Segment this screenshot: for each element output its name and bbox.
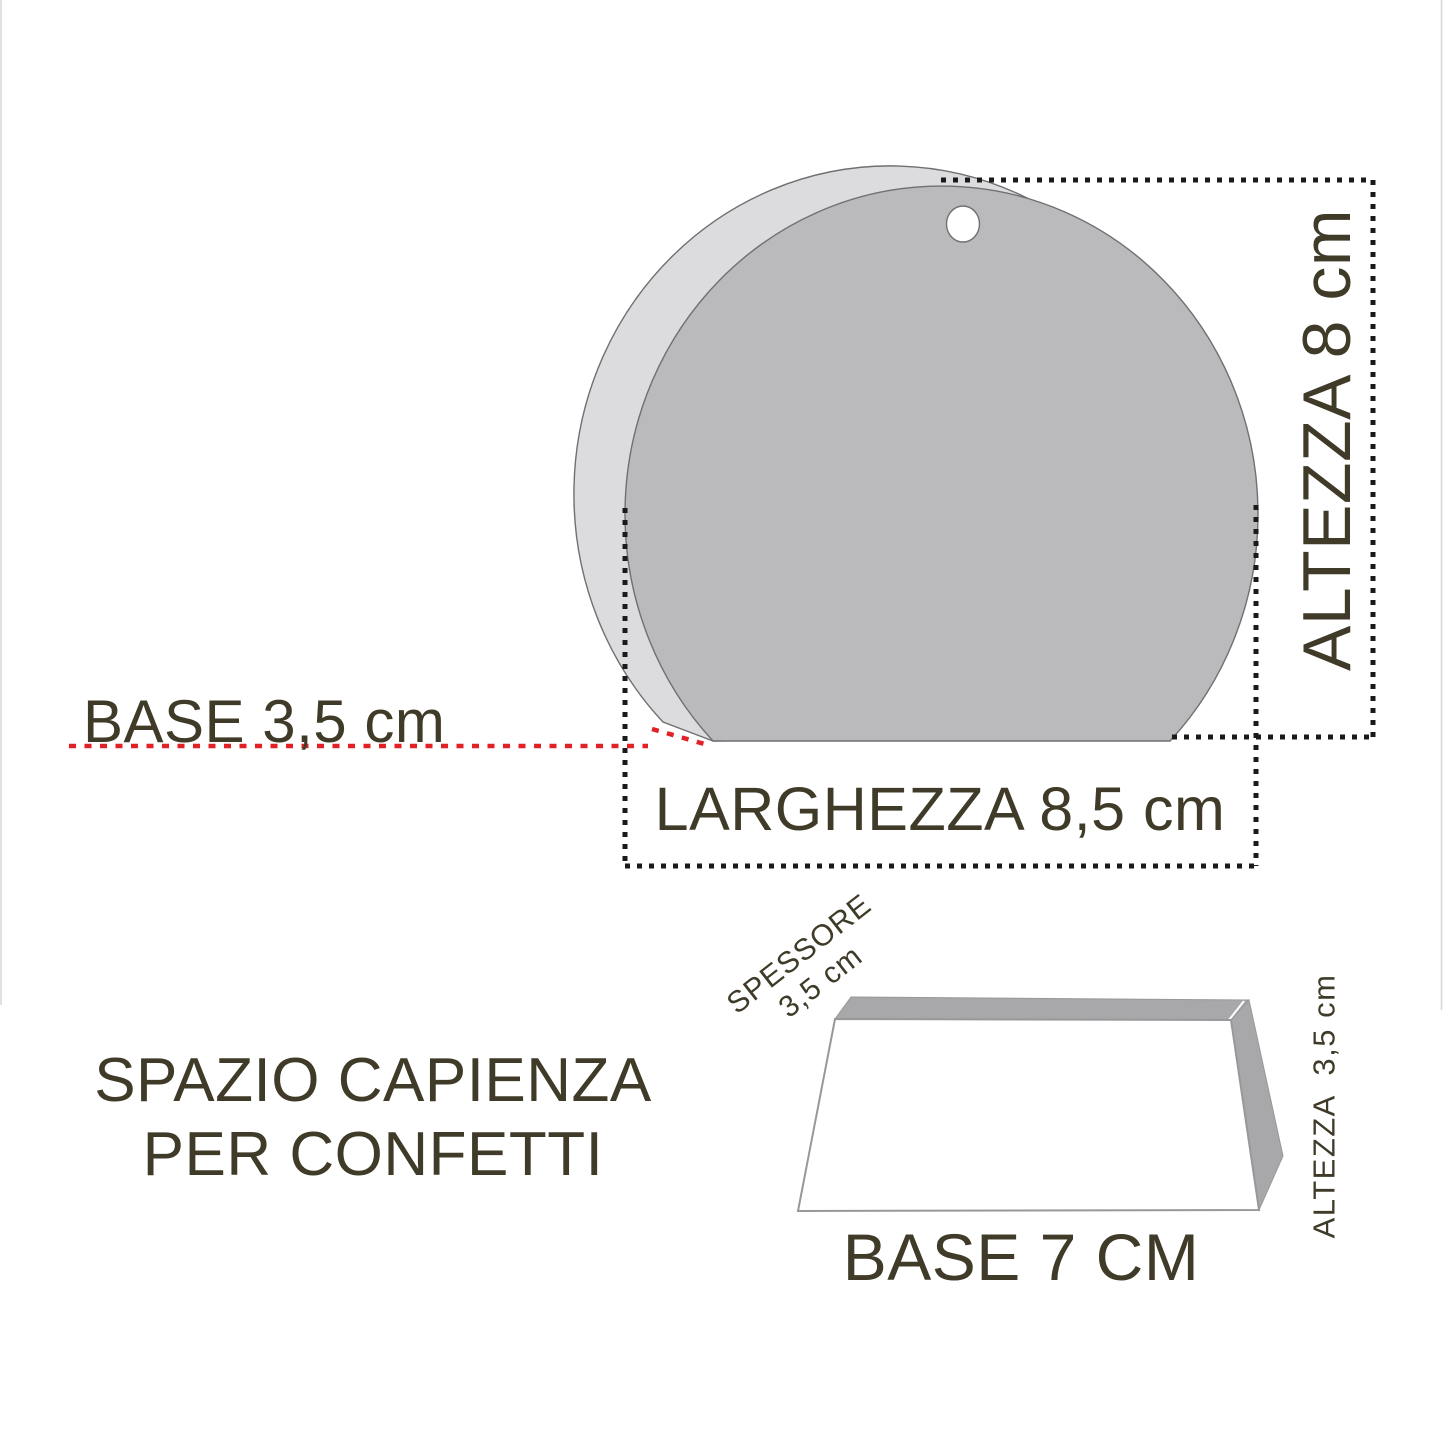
- prism-top-face: [835, 997, 1249, 1020]
- label-larghezza-8-5-cm: LARGHEZZA 8,5 cm: [625, 779, 1255, 840]
- confetti-space-title: SPAZIO CAPIENZA PER CONFETTI: [48, 1044, 698, 1192]
- label-altezza-8-cm: ALTEZZA 8 cm: [1293, 209, 1361, 671]
- hang-hole: [947, 206, 980, 242]
- confetti-space-title-line2: PER CONFETTI: [48, 1118, 698, 1192]
- prism-front-face: [798, 1019, 1259, 1211]
- label-altezza-3-5-cm: ALTEZZA 3,5 cm: [1309, 974, 1340, 1239]
- confetti-space-title-line1: SPAZIO CAPIENZA: [48, 1044, 698, 1118]
- label-base-7-cm: BASE 7 CM: [816, 1224, 1226, 1290]
- label-base-3-5-cm: BASE 3,5 cm: [83, 692, 445, 752]
- dimension-diagram: BASE 3,5 cm LARGHEZZA 8,5 cm ALTEZZA 8 c…: [0, 0, 1445, 1445]
